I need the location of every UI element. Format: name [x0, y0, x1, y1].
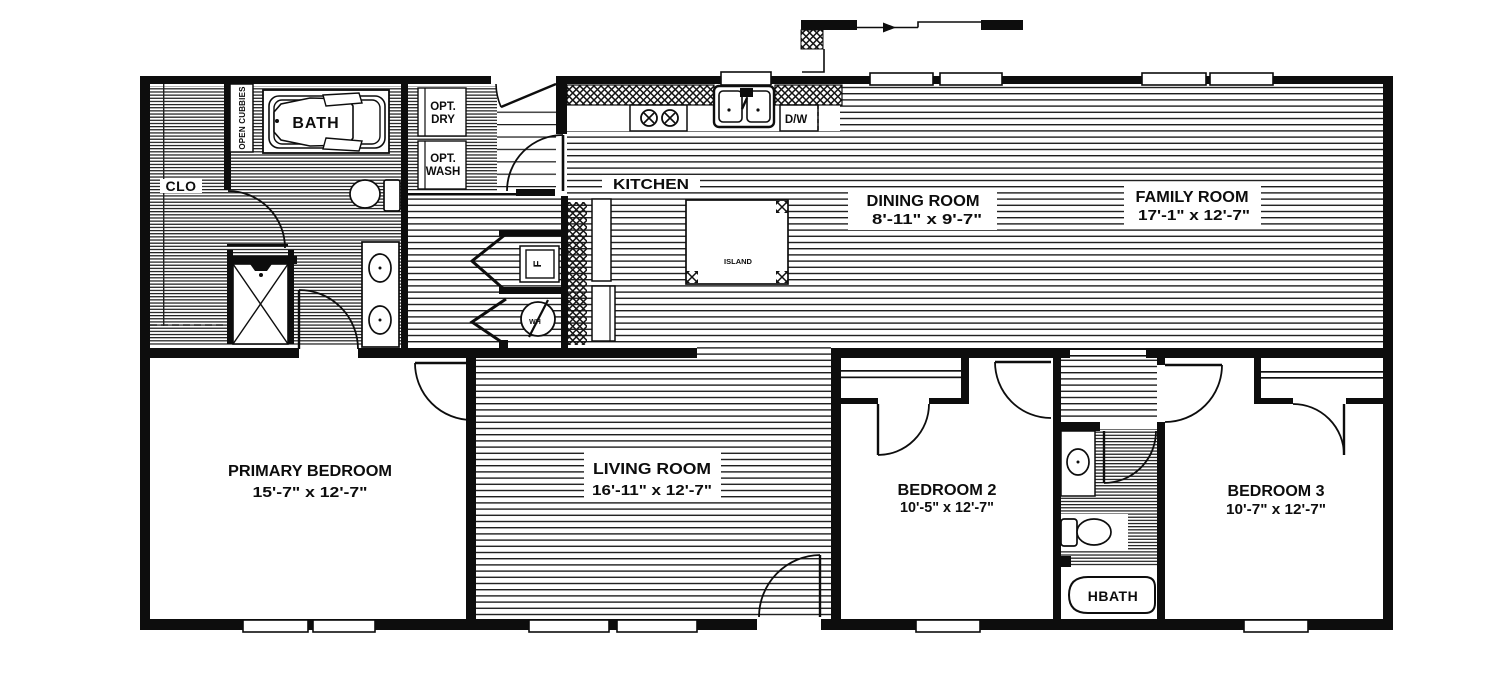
svg-text:D/W: D/W [785, 114, 808, 126]
svg-text:WH: WH [529, 319, 541, 326]
svg-text:HBATH: HBATH [1088, 588, 1138, 604]
svg-text:PRIMARY BEDROOM: PRIMARY BEDROOM [228, 463, 392, 480]
svg-text:16'-11" x 12'-7": 16'-11" x 12'-7" [592, 483, 712, 499]
svg-text:BEDROOM 3: BEDROOM 3 [1228, 483, 1325, 500]
svg-text:CLO: CLO [165, 178, 196, 194]
svg-text:DRY: DRY [431, 114, 455, 126]
svg-text:FAMILY ROOM: FAMILY ROOM [1136, 189, 1249, 206]
svg-text:KITCHEN: KITCHEN [613, 176, 689, 193]
svg-text:LIVING ROOM: LIVING ROOM [593, 461, 711, 478]
svg-text:ISLAND: ISLAND [724, 257, 753, 266]
svg-text:OPT.: OPT. [430, 153, 456, 165]
svg-text:OPEN CUBBIES: OPEN CUBBIES [238, 86, 247, 150]
svg-text:10'-7" x 12'-7": 10'-7" x 12'-7" [1226, 502, 1326, 518]
svg-text:10'-5" x 12'-7": 10'-5" x 12'-7" [900, 500, 994, 516]
svg-text:F: F [532, 260, 544, 267]
svg-text:15'-7" x 12'-7": 15'-7" x 12'-7" [253, 485, 368, 501]
svg-text:WASH: WASH [426, 166, 461, 178]
svg-text:DINING ROOM: DINING ROOM [867, 193, 980, 210]
svg-text:OPT.: OPT. [430, 101, 456, 113]
svg-text:BEDROOM 2: BEDROOM 2 [898, 482, 997, 499]
svg-text:BATH: BATH [292, 115, 339, 132]
svg-text:8'-11" x 9'-7": 8'-11" x 9'-7" [872, 212, 982, 228]
svg-text:17'-1" x 12'-7": 17'-1" x 12'-7" [1138, 208, 1250, 224]
